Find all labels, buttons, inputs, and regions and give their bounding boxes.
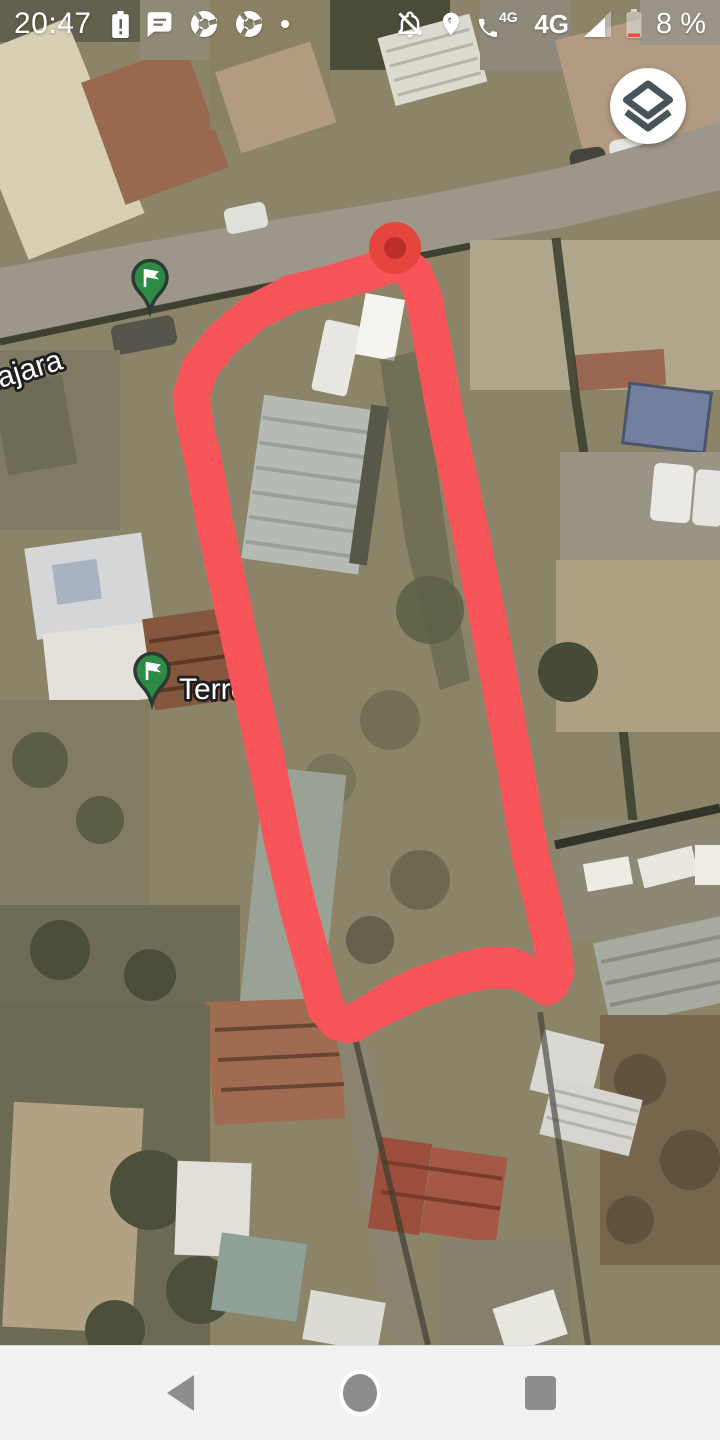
battery-percent-label: 8 % bbox=[656, 8, 706, 41]
clock: 20:47 bbox=[14, 7, 92, 41]
back-button[interactable] bbox=[150, 1363, 210, 1423]
layers-button[interactable] bbox=[610, 68, 686, 144]
satellite-map[interactable]: lajara Terre bbox=[0, 0, 720, 1345]
notifications-off-icon bbox=[395, 9, 425, 39]
chrome-icon bbox=[190, 10, 218, 38]
network-type-label: 4G bbox=[534, 9, 569, 40]
satellite-imagery: lajara Terre bbox=[0, 0, 720, 1345]
volte-4g-icon: 4G bbox=[477, 9, 521, 39]
signal-strength-icon bbox=[582, 10, 612, 38]
battery-alert-icon bbox=[112, 11, 129, 38]
overview-button[interactable] bbox=[510, 1363, 570, 1423]
notification-dot-icon bbox=[280, 19, 290, 29]
layers-icon bbox=[616, 0, 680, 779]
red-dot-marker[interactable] bbox=[369, 222, 421, 274]
sms-message-icon bbox=[146, 11, 173, 37]
battery-low-icon bbox=[625, 9, 643, 39]
home-button[interactable] bbox=[330, 1363, 390, 1423]
svg-text:4G: 4G bbox=[499, 9, 518, 25]
android-screen: lajara Terre bbox=[0, 0, 720, 1440]
status-left-icons bbox=[112, 10, 290, 38]
overview-icon bbox=[525, 1376, 556, 1410]
status-bar: 20:47 bbox=[0, 0, 720, 48]
navigation-bar bbox=[0, 1345, 720, 1440]
location-icon bbox=[438, 10, 464, 38]
back-icon bbox=[167, 1375, 194, 1411]
home-icon bbox=[339, 1370, 381, 1416]
satellite-ground bbox=[0, 0, 720, 1345]
chrome-icon bbox=[235, 10, 263, 38]
status-right-icons: 4G 4G 8 % bbox=[395, 8, 706, 41]
